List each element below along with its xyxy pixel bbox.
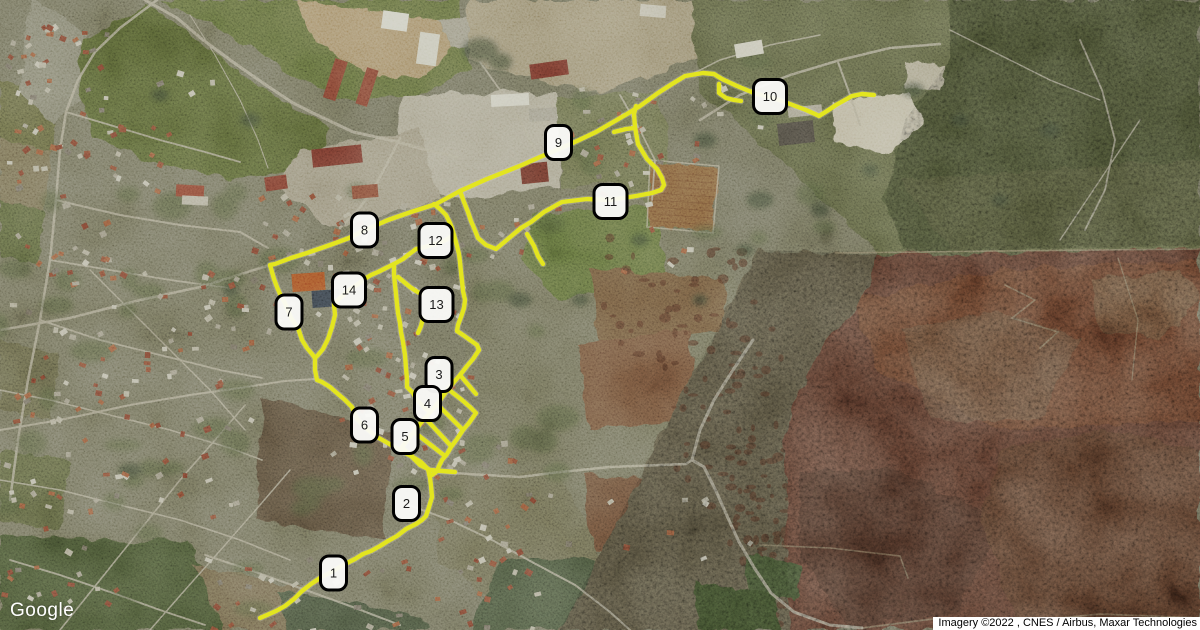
- svg-text:9: 9: [555, 135, 562, 150]
- svg-text:10: 10: [763, 89, 777, 104]
- svg-text:14: 14: [342, 283, 356, 298]
- svg-text:8: 8: [361, 223, 368, 238]
- svg-text:5: 5: [401, 429, 408, 444]
- svg-text:7: 7: [285, 305, 292, 320]
- svg-text:12: 12: [428, 233, 442, 248]
- svg-text:2: 2: [403, 496, 410, 511]
- svg-text:13: 13: [429, 297, 443, 312]
- svg-text:1: 1: [330, 566, 337, 581]
- svg-text:3: 3: [435, 367, 442, 382]
- svg-text:6: 6: [361, 418, 368, 433]
- svg-text:4: 4: [424, 396, 431, 411]
- svg-text:11: 11: [604, 194, 618, 209]
